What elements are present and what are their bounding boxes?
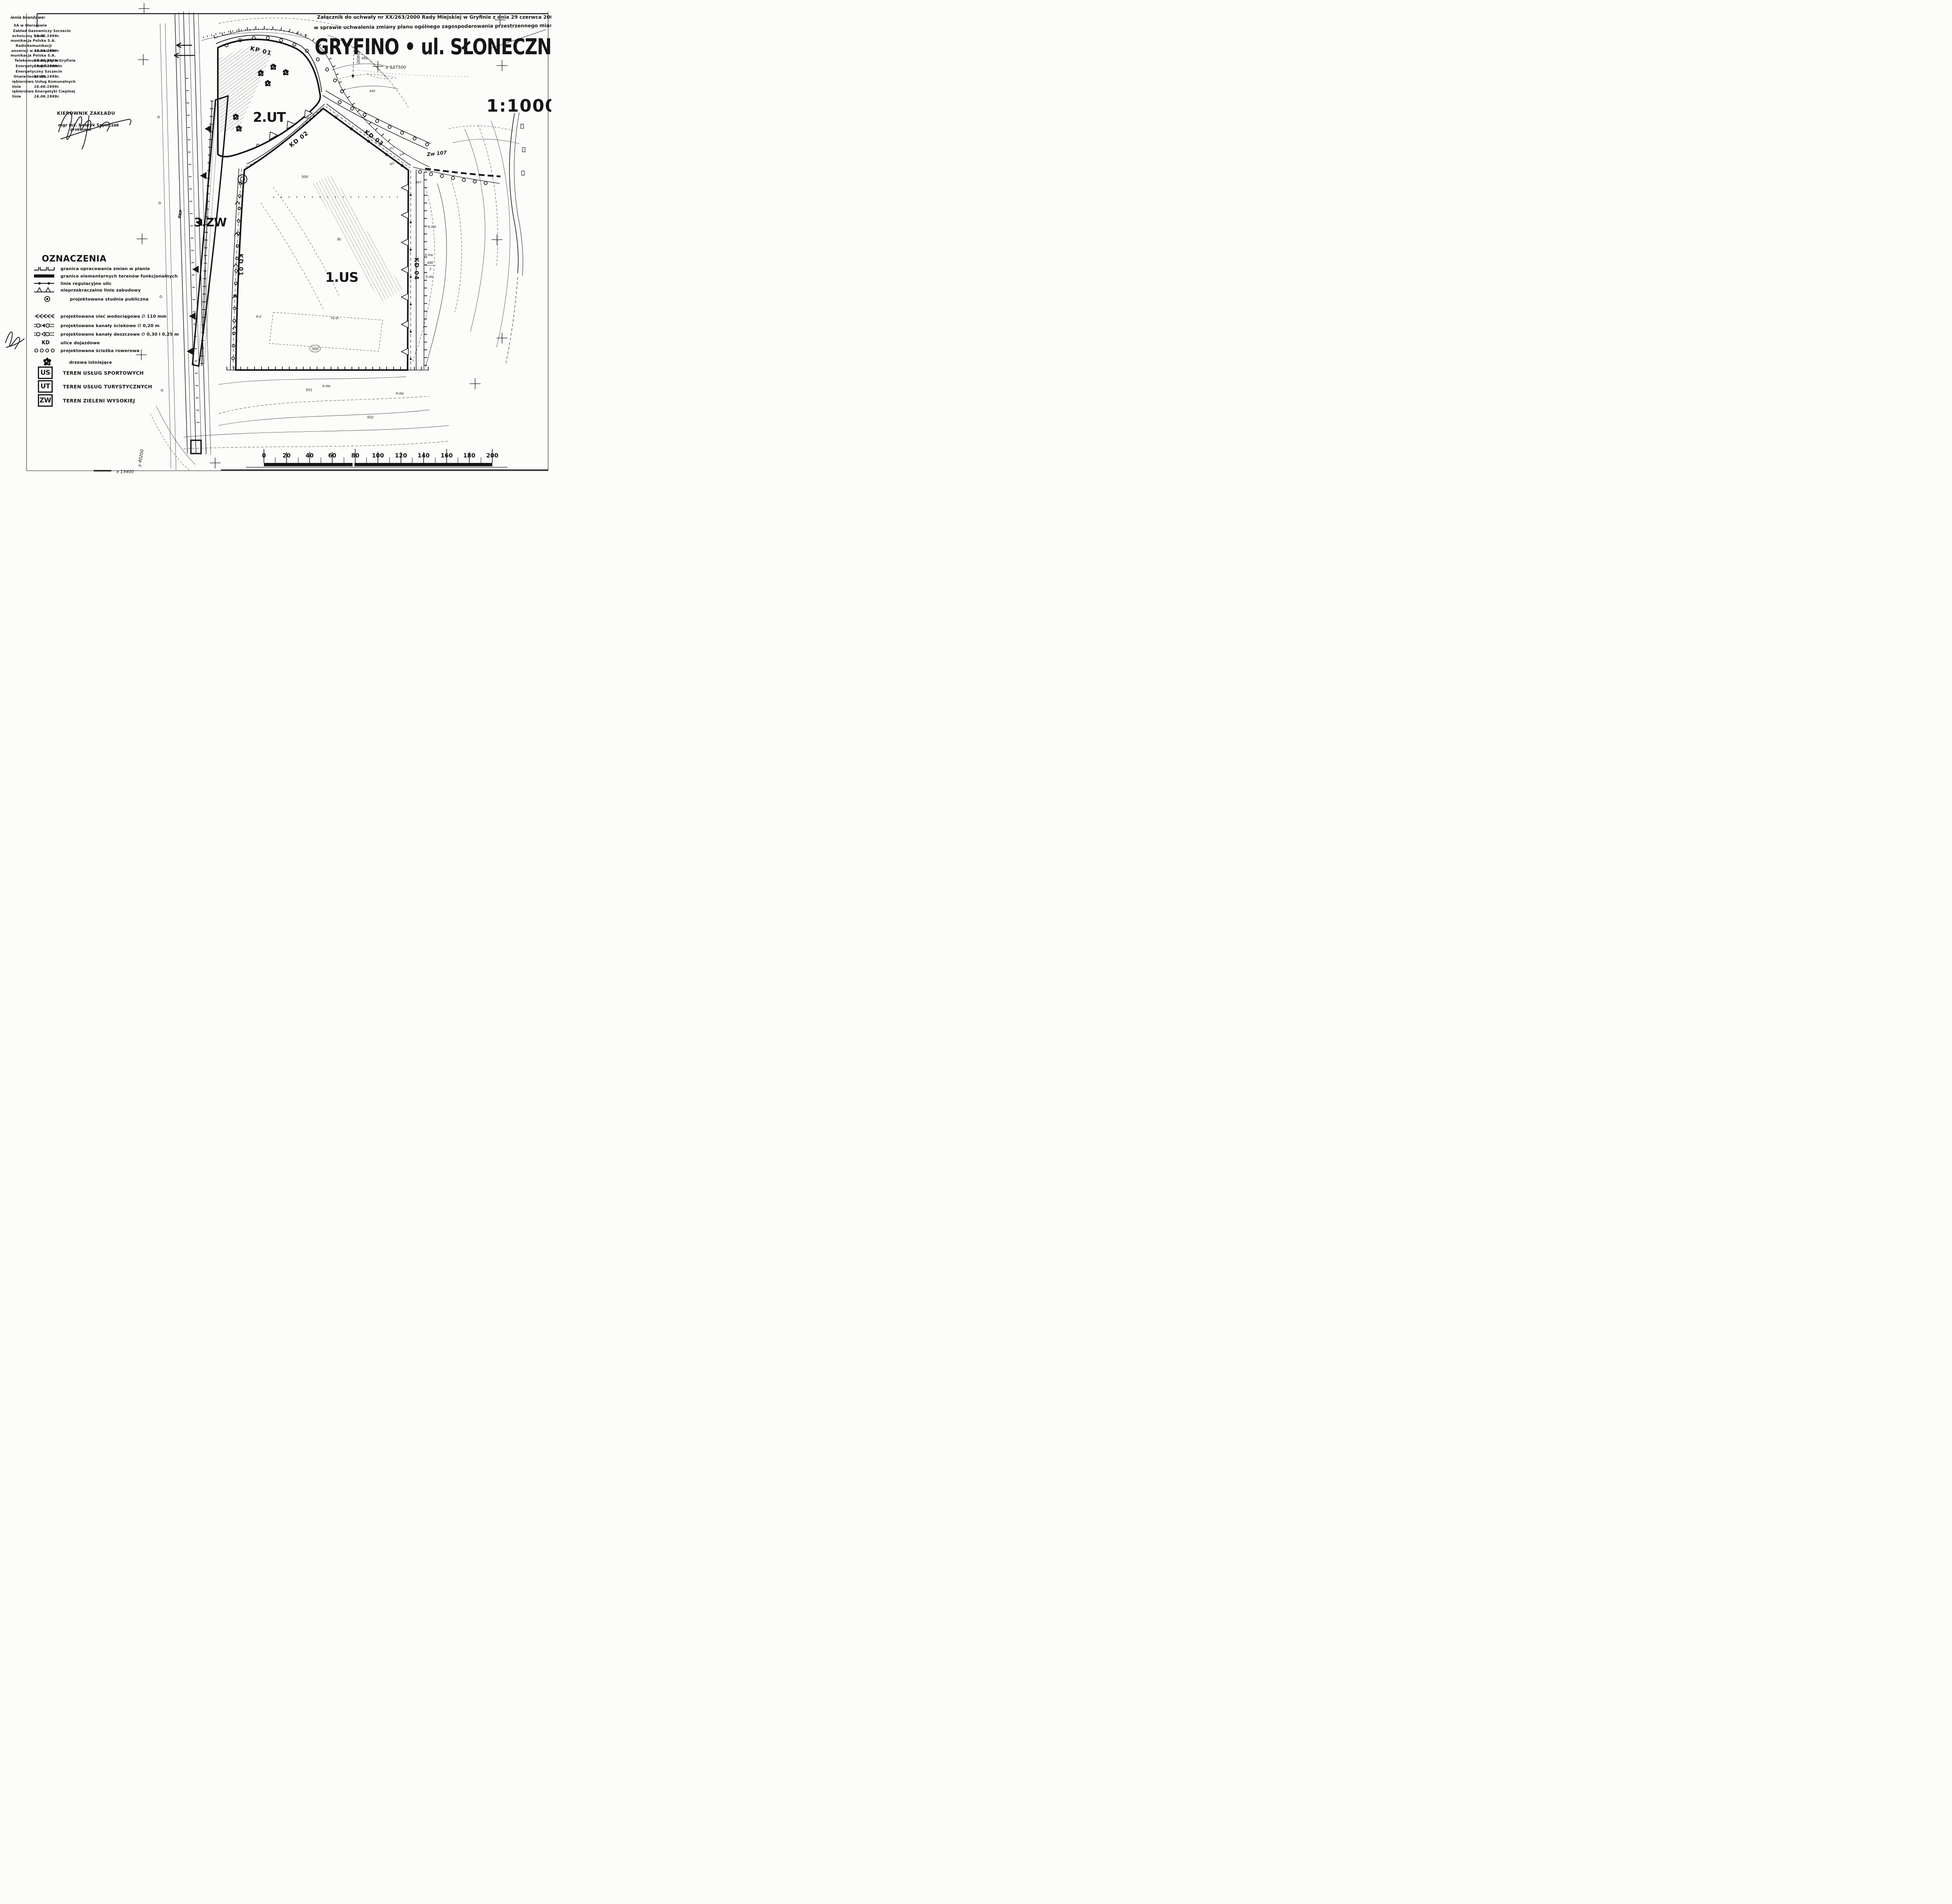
label-pkp: PKP (178, 209, 183, 219)
approval-row: munikacja Polska S.A. (0, 54, 94, 58)
legend-zone-zw: ZW TEREN ZIELENI WYSOKIEJ (38, 394, 135, 407)
approval-row: Radiokomunikacji (0, 44, 94, 48)
plan-boundary-icon (33, 265, 61, 272)
coord-x137500: x 137500 (385, 65, 406, 70)
signature-role: prokurent (70, 128, 91, 132)
legend-title: OZNACZENIA (42, 254, 107, 264)
coord-x13400: x 13400 (116, 469, 134, 474)
bike-path-dots (225, 36, 487, 360)
sewage-channel-icon (33, 322, 61, 329)
legend-zone-us: US TEREN USŁUG SPORTOWYCH (38, 367, 144, 379)
storm-channel-icon (33, 330, 61, 338)
approval-row: iębiorstwo Energetyki Cieplnej (0, 90, 94, 94)
us-zone-box: US (38, 367, 53, 379)
zone-label-3zw: 3.ZW (194, 216, 227, 230)
approval-row: SA w Warszawie (0, 24, 94, 28)
ut-zone-box: UT (38, 380, 53, 393)
approval-row: iębiorstwo Usług Komunalnych (0, 80, 94, 84)
legend: OZNACZENIA granica opracowania zmian w p… (33, 252, 205, 439)
svg-text:R-V: R-V (256, 315, 262, 319)
approval-row: Oświetlenia Ulic15.06.1999r. (0, 75, 94, 79)
svg-text:500: 500 (301, 175, 308, 179)
coord-y40200: y 40200 (137, 449, 145, 468)
legend-zone-ut: UT TEREN USŁUG TURYSTYCZNYCH (38, 380, 152, 393)
svg-text:353: 353 (389, 146, 395, 151)
existing-tree-icon (33, 358, 69, 367)
zone-label-1us: 1.US (325, 270, 358, 285)
approval-row: echniczny Sieci14.06.1999r. (0, 34, 94, 38)
svg-text:Ps-VI: Ps-VI (331, 317, 339, 320)
legend-item: projektowane kanały ściekowe ∅ 0,20 m (33, 322, 160, 329)
svg-text:498: 498 (427, 261, 433, 265)
legend-item: granice elementarnych terenów funkcjonal… (33, 272, 178, 280)
legend-item: projektowane kanały deszczowe ∅ 0,30 i 0… (33, 330, 179, 338)
approval-row: Zakład Gazowniczy Szczecin (0, 29, 94, 33)
legend-item: KD ulice dojazdowe (33, 339, 100, 347)
legend-item: granica opracowania zmian w planie (33, 265, 150, 272)
road-label-kd04: KD 04 (413, 258, 420, 280)
page-title: GRYFINO • ul. SŁONECZNA (315, 34, 551, 60)
attachment-note-line1: Załącznik do uchwały nr XX/263/2000 Rady… (317, 14, 551, 20)
svg-text:497: 497 (415, 181, 422, 184)
svg-text:502: 502 (367, 416, 374, 420)
legend-item: nieprzekraczalne linie zabudowy (33, 286, 141, 294)
legend-item: drzewa istniejące (33, 358, 112, 366)
kd-symbol: KD (33, 340, 61, 346)
svg-text:R-IVa: R-IVa (425, 253, 433, 257)
zone-boundary-icon (33, 272, 61, 280)
approval-row: linie16.06.1999r. (0, 85, 94, 89)
signature-name: mgr inż. Henryk Szymczak (58, 123, 119, 128)
road-label-kd02: KD 02 (288, 129, 310, 149)
legend-item: projektowana sieć wodociągowa ∅ 110 mm (33, 312, 167, 320)
approval-row: Energetyczny Szczecin15.06.1999r. (0, 64, 94, 68)
roads (216, 35, 525, 370)
scale-bar: 0 20 40 60 80 100 120 140 160 180 200 (246, 449, 508, 467)
svg-text:R-IIIb: R-IIIb (322, 384, 331, 388)
signature-scribble (52, 108, 137, 151)
approvals-heading: ienia branżowe: (11, 16, 46, 20)
road-label-kd01: KD 01 (237, 254, 244, 276)
svg-text:460: 460 (369, 89, 375, 93)
svg-text:R-IVb: R-IVb (428, 225, 436, 229)
legend-item: projektowana studnia publiczna (33, 295, 149, 303)
svg-text:365: 365 (389, 162, 395, 166)
approval-row: linie16.06.1999r. (0, 95, 94, 99)
approval-row: ansmisji w Szczecinie15.06.1999r. (0, 49, 94, 53)
water-main-icon (33, 312, 61, 320)
public-well-icon (33, 295, 70, 303)
margin-scribble (2, 326, 27, 351)
zone-label-2ut: 2.UT (253, 110, 286, 125)
approval-row: munikacja Polska S.A. (0, 39, 94, 43)
terrain-hatch-areas (198, 46, 403, 365)
approval-row: Telekomunikacyjny w Gryfinie16.06.1999r. (0, 59, 94, 63)
plan-sheet: x 137500 40400 x 13400 y 40200 2.UT 1.US… (0, 0, 551, 476)
building-limit-line-icon (33, 286, 61, 294)
map-scale: 1:1000 (486, 96, 551, 116)
label-zw107: Zw 107 (426, 149, 447, 157)
svg-text:R-IIIb: R-IIIb (426, 275, 434, 279)
bike-path-icon (33, 347, 61, 354)
svg-text:2: 2 (429, 267, 431, 271)
svg-text:501: 501 (306, 388, 312, 392)
svg-text:R-IIIb: R-IIIb (396, 392, 404, 395)
svg-text:500: 500 (312, 347, 319, 351)
svg-text:Bc: Bc (337, 238, 342, 242)
signature-block: KIEROWNIK ZAKŁADU mgr inż. Henryk Szymcz… (52, 108, 137, 151)
approval-row: Energetyczny Szczecin (0, 70, 94, 74)
branch-approvals-list: ienia branżowe: SA w Warszawie Zakład Ga… (0, 0, 102, 105)
zw-zone-box: ZW (38, 394, 53, 407)
legend-item: projektowana ścieżka rowerowa (33, 347, 139, 354)
